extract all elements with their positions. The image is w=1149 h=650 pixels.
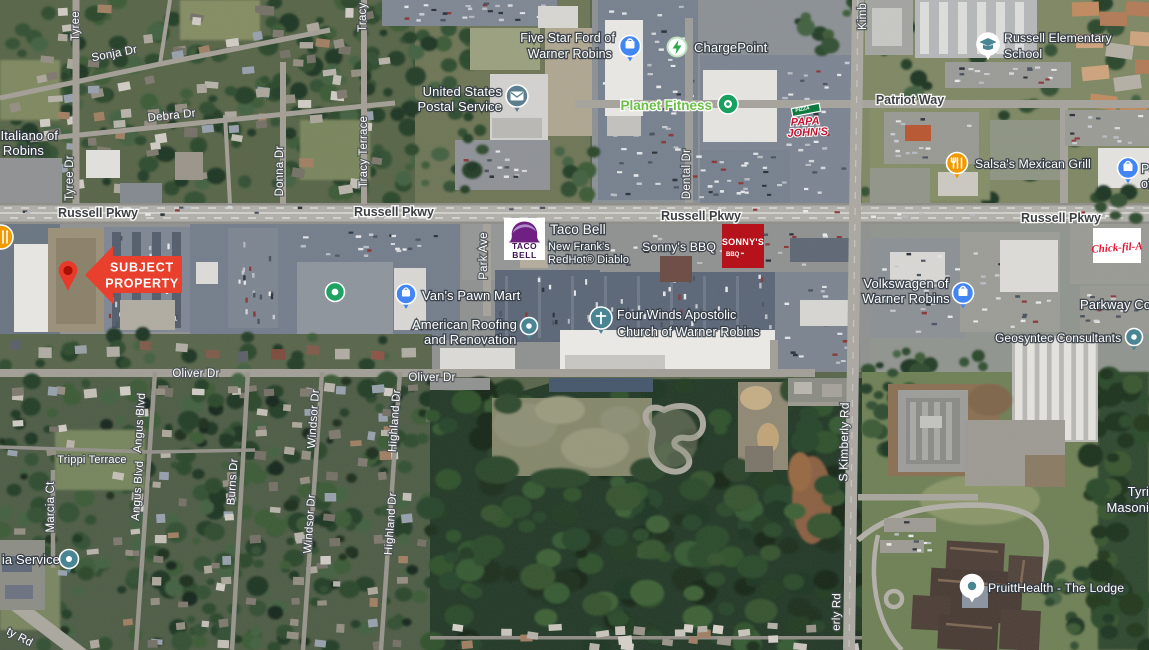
svg-text:SUBJECT: SUBJECT — [110, 261, 174, 275]
svg-text:Planet Fitness: Planet Fitness — [620, 98, 712, 113]
svg-text:Dental Dr: Dental Dr — [681, 149, 693, 199]
svg-text:Russell Pkwy: Russell Pkwy — [661, 209, 741, 223]
svg-text:Five Star Ford of: Five Star Ford of — [520, 31, 615, 45]
svg-text:Warner Robins: Warner Robins — [862, 291, 950, 306]
svg-text:Oliver Dr: Oliver Dr — [408, 372, 455, 384]
svg-text:S Kimberly Rd: S Kimberly Rd — [836, 402, 851, 482]
svg-text:Masoni: Masoni — [1106, 500, 1149, 515]
svg-text:Church of Warner Robins: Church of Warner Robins — [617, 325, 760, 339]
svg-text:Russell Pkwy: Russell Pkwy — [1021, 211, 1101, 225]
svg-text:BELL: BELL — [512, 250, 537, 260]
svg-text:Russell Elementary: Russell Elementary — [1004, 31, 1112, 45]
svg-text:Tracy Terrace: Tracy Terrace — [358, 116, 370, 188]
svg-text:Tracy T: Tracy T — [357, 0, 369, 32]
svg-text:Salsa's Mexican Grill: Salsa's Mexican Grill — [975, 157, 1091, 171]
svg-text:ChargePoint: ChargePoint — [694, 40, 768, 55]
svg-text:Postal Service: Postal Service — [418, 99, 503, 114]
svg-text:American Roofing: American Roofing — [412, 317, 517, 332]
svg-text:Park Ave: Park Ave — [478, 232, 490, 279]
svg-text:r Robins: r Robins — [0, 143, 44, 158]
svg-text:Geosyntec Consultants: Geosyntec Consultants — [995, 331, 1121, 345]
svg-text:Taco Bell: Taco Bell — [550, 222, 606, 237]
svg-text:ia Service: ia Service — [2, 552, 60, 567]
svg-text:o Italiano of: o Italiano of — [0, 128, 58, 143]
svg-text:Trippi Terrace: Trippi Terrace — [57, 454, 126, 466]
svg-text:Russell Pkwy: Russell Pkwy — [354, 205, 434, 219]
svg-text:School: School — [1004, 47, 1042, 61]
svg-text:Parkway Con: Parkway Con — [1080, 297, 1149, 312]
svg-text:Tyri: Tyri — [1128, 484, 1149, 499]
svg-text:Sonny's BBQ: Sonny's BBQ — [642, 240, 716, 254]
svg-text:Volkswagen of: Volkswagen of — [863, 276, 948, 291]
svg-text:Russell Pkwy: Russell Pkwy — [58, 206, 138, 220]
svg-text:PROPERTY: PROPERTY — [105, 277, 179, 291]
svg-text:Tyree Dr: Tyree Dr — [64, 155, 76, 201]
svg-text:United States: United States — [423, 84, 503, 99]
svg-text:Kimb: Kimb — [857, 3, 869, 30]
svg-text:RedHot® Diablo: RedHot® Diablo — [548, 254, 629, 266]
svg-text:Van's Pawn Mart: Van's Pawn Mart — [422, 288, 521, 303]
svg-text:SONNY'S: SONNY'S — [722, 237, 764, 247]
svg-text:and Renovation: and Renovation — [424, 332, 516, 347]
svg-text:Oliver Dr: Oliver Dr — [172, 368, 219, 380]
svg-text:Patriot Way: Patriot Way — [876, 93, 944, 107]
svg-text:Warner Robins: Warner Robins — [528, 47, 612, 61]
svg-text:Four Winds Apostolic: Four Winds Apostolic — [617, 308, 736, 322]
svg-text:Tyree: Tyree — [70, 11, 82, 41]
svg-text:PruittHealth - The Lodge: PruittHealth - The Lodge — [988, 581, 1124, 595]
svg-text:Donna Dr: Donna Dr — [274, 146, 286, 197]
svg-text:of: of — [1141, 177, 1149, 191]
svg-text:erly Rd: erly Rd — [831, 593, 844, 631]
svg-text:Marcia Ct: Marcia Ct — [45, 481, 57, 533]
svg-text:Pa: Pa — [1141, 162, 1149, 176]
svg-text:JOHN'S: JOHN'S — [787, 126, 829, 140]
svg-text:New Frank's: New Frank's — [548, 241, 610, 253]
